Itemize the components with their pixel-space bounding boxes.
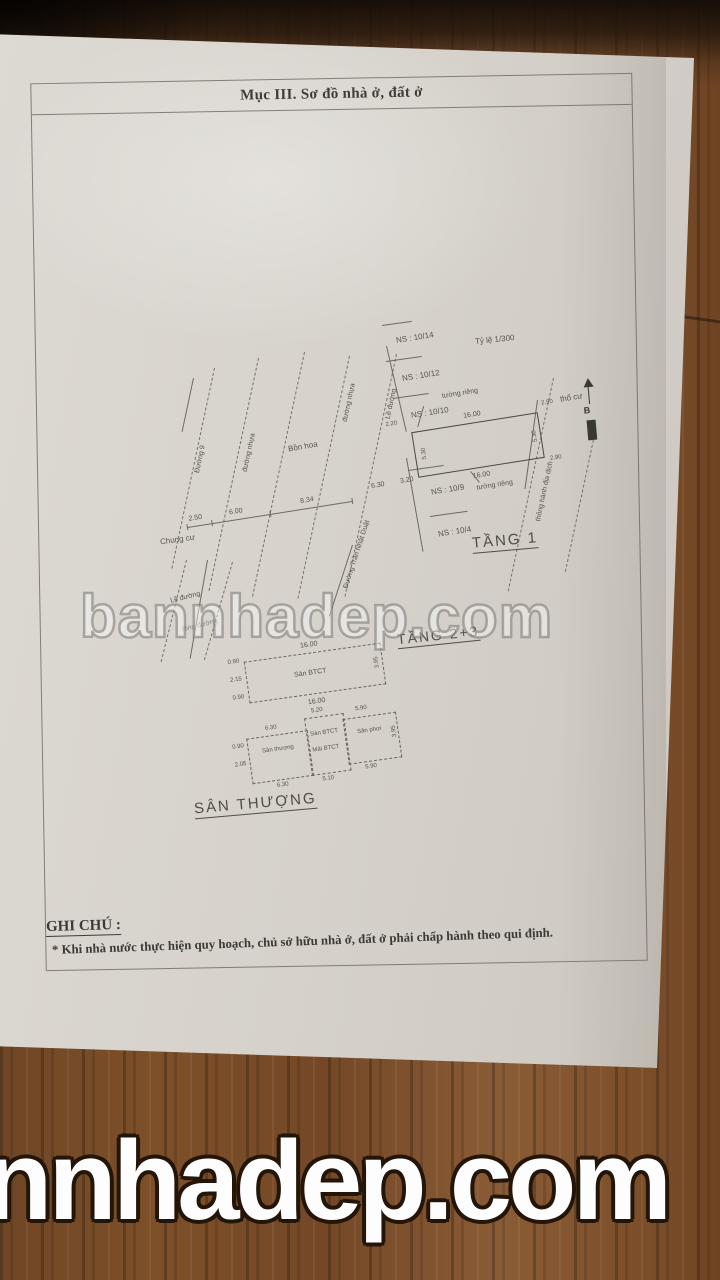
wood-plank-seam [684,315,720,323]
roof-left-terrace-outline [246,730,314,784]
dim: 5.90 [365,763,377,771]
document-frame: Mục III. Sơ đồ nhà ở, đất ở [30,73,647,971]
north-bar-icon [587,420,598,441]
roof-right-terrace-outline [342,712,402,765]
dim: 5.90 [355,705,367,713]
north-arrow-line [588,386,591,404]
section-title: Mục III. Sơ đồ nhà ở, đất ở [240,84,423,104]
watermark-middle: bannhadep.com [80,582,553,651]
north-letter: B [583,406,590,416]
watermark-bottom: nnhadep.com [0,1116,668,1245]
section-header-row: Mục III. Sơ đồ nhà ở, đất ở [31,74,631,115]
note-title: GHI CHÚ : [46,918,121,937]
dim: 5.20 [311,707,323,715]
dim: 6.30 [265,724,277,732]
